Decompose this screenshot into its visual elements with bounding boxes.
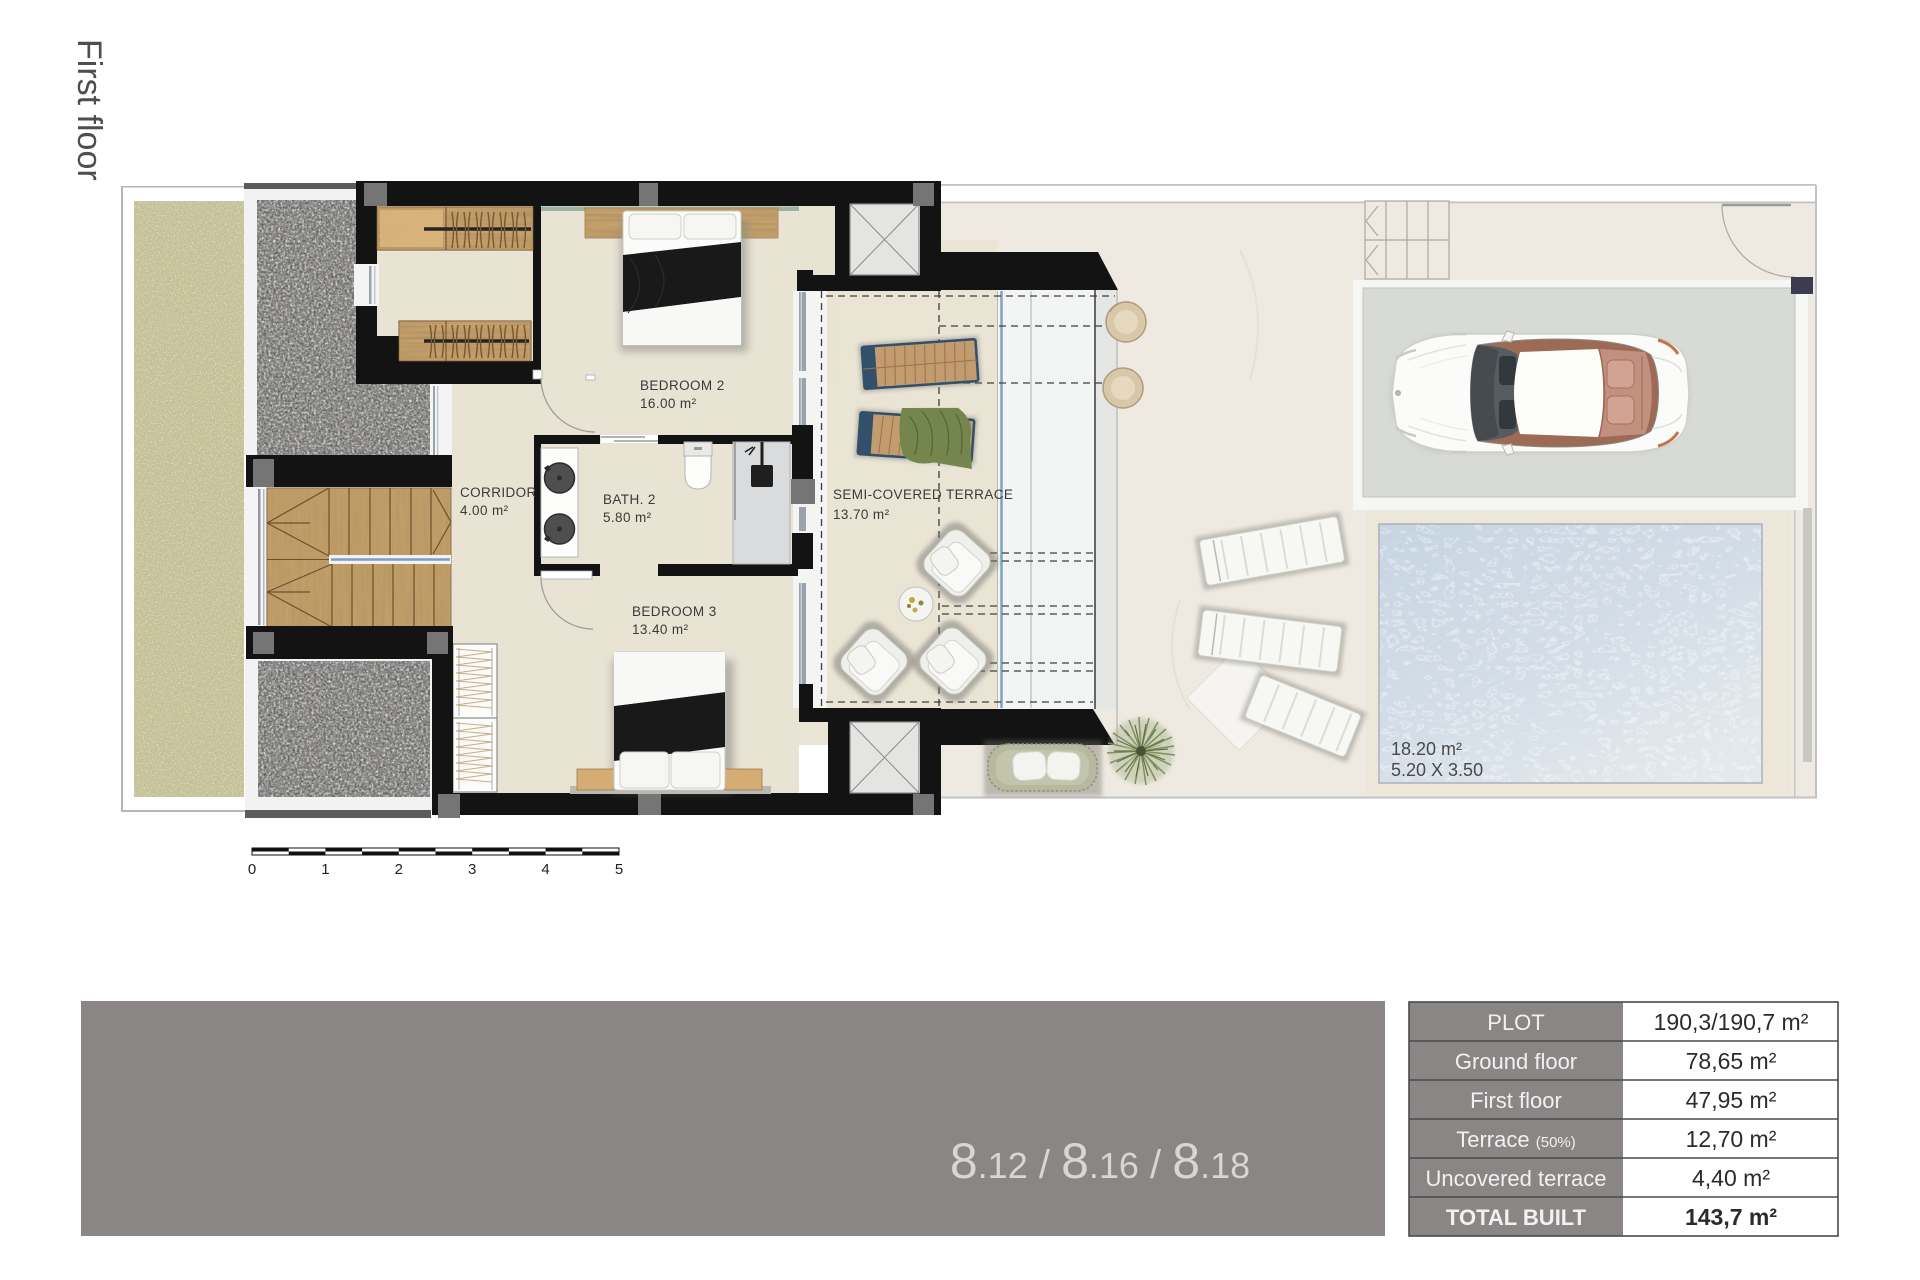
svg-text:5.20 X 3.50: 5.20 X 3.50 (1391, 760, 1483, 780)
svg-text:CORRIDOR: CORRIDOR (460, 485, 537, 500)
svg-text:4.00 m²: 4.00 m² (460, 503, 509, 518)
svg-text:4: 4 (541, 861, 549, 878)
svg-text:12,70 m²: 12,70 m² (1686, 1126, 1777, 1152)
svg-text:First floor: First floor (70, 39, 108, 181)
svg-text:1: 1 (321, 861, 329, 878)
svg-text:5.80 m²: 5.80 m² (603, 510, 652, 525)
svg-text:BATH. 2: BATH. 2 (603, 492, 656, 507)
svg-text:BEDROOM 2: BEDROOM 2 (640, 378, 725, 393)
svg-text:4,40 m²: 4,40 m² (1692, 1165, 1770, 1191)
svg-text:13.70 m²: 13.70 m² (833, 507, 890, 522)
svg-text:16.00 m²: 16.00 m² (640, 396, 697, 411)
svg-text:2: 2 (395, 861, 403, 878)
svg-text:TOTAL BUILT: TOTAL BUILT (1446, 1205, 1587, 1230)
svg-text:SEMI-COVERED TERRACE: SEMI-COVERED TERRACE (833, 487, 1013, 502)
svg-text:BEDROOM 3: BEDROOM 3 (632, 604, 717, 619)
svg-text:Uncovered terrace: Uncovered terrace (1426, 1166, 1607, 1191)
svg-text:PLOT: PLOT (1487, 1010, 1544, 1035)
svg-text:143,7 m²: 143,7 m² (1685, 1204, 1777, 1230)
svg-text:190,3/190,7 m²: 190,3/190,7 m² (1654, 1009, 1809, 1035)
svg-text:78,65 m²: 78,65 m² (1686, 1048, 1777, 1074)
svg-text:47,95 m²: 47,95 m² (1686, 1087, 1777, 1113)
svg-text:0: 0 (248, 861, 256, 878)
svg-text:Ground floor: Ground floor (1455, 1049, 1577, 1074)
svg-text:13.40 m²: 13.40 m² (632, 622, 689, 637)
svg-text:3: 3 (468, 861, 476, 878)
svg-text:18.20 m²: 18.20 m² (1391, 739, 1462, 759)
svg-text:5: 5 (615, 861, 623, 878)
svg-text:First floor: First floor (1470, 1088, 1562, 1113)
